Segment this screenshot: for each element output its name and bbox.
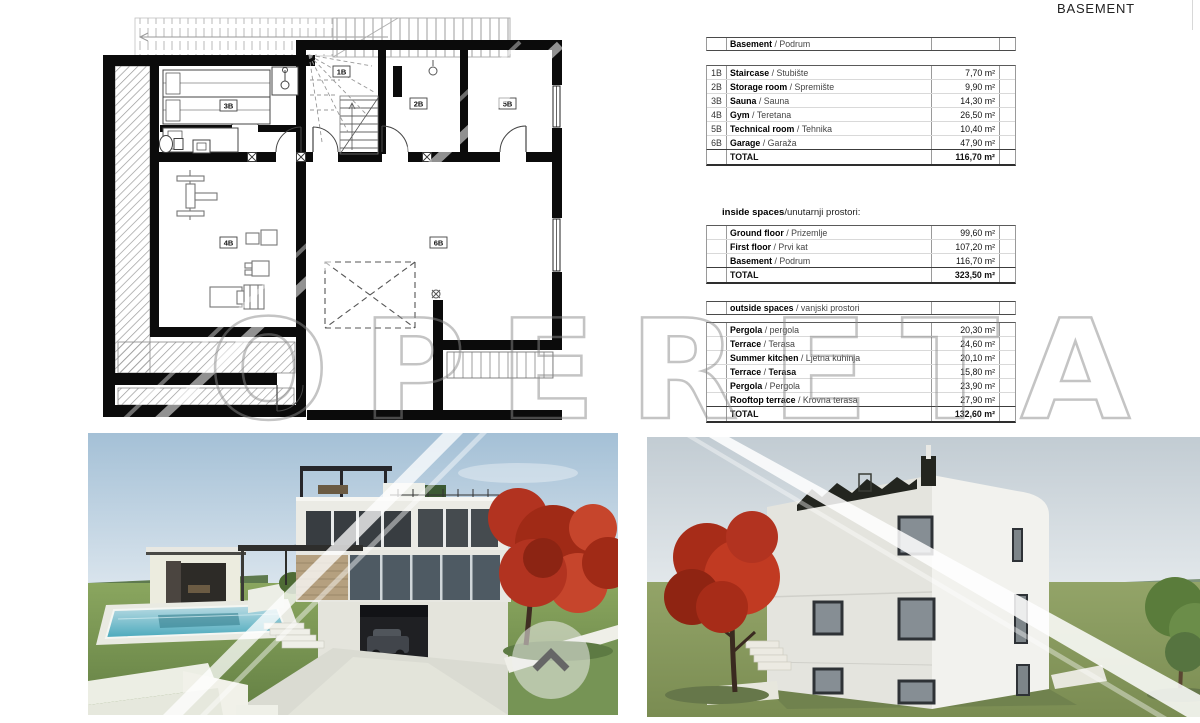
table-row: Summer kitchen / Ljetna kuhinja 20,10 m² (707, 351, 1015, 365)
floor-plan: 1B 2B 5B 3B 4B 6B (85, 0, 585, 430)
chevron-up-icon (529, 645, 573, 675)
table-row: Terrace / Terasa 24,60 m² (707, 337, 1015, 351)
floor-drains (247, 290, 440, 300)
inside-spaces-table: Ground floor / Prizemlje 99,60 m² First … (706, 225, 1016, 284)
page: BASEMENT (0, 0, 1200, 723)
ceiling-lamp-icon (429, 60, 437, 75)
table-row: 4B Gym / Teretana 26,50 m² (707, 108, 1015, 122)
table-row: Pergola / Pergola 23,90 m² (707, 379, 1015, 393)
table-total-row: TOTAL 132,60 m² (706, 406, 1016, 423)
scroll-to-top-button[interactable] (512, 621, 590, 699)
page-title: BASEMENT (1057, 1, 1135, 16)
window (418, 509, 498, 547)
table-row: 2B Storage room / Spremište 9,90 m² (707, 80, 1015, 94)
room-label-2b: 2B (414, 100, 424, 109)
room-label-4b: 4B (224, 239, 234, 248)
table-total-row: TOTAL 116,70 m² (706, 149, 1016, 166)
table-row: 5B Technical room / Tehnika 10,40 m² (707, 122, 1015, 136)
basement-area-table: Basement / Podrum 1B Staircase / Stubišt… (706, 37, 1016, 166)
exterior-staircase-top (333, 18, 510, 57)
exterior-staircase-bottom (447, 352, 553, 378)
window-edge-line (1192, 0, 1193, 30)
room-label-1b: 1B (337, 68, 347, 77)
house-rendering-rear (647, 437, 1200, 717)
garage-lift-dashed (325, 262, 415, 328)
table-row: 3B Sauna / Sauna 14,30 m² (707, 94, 1015, 108)
room-label-3b: 3B (224, 102, 234, 111)
outside-spaces-table: outside spaces / vanjski prostori Pergol… (706, 301, 1016, 423)
table-row: Pergola / pergola 20,30 m² (707, 323, 1015, 337)
table-row: Basement / Podrum 116,70 m² (707, 254, 1015, 267)
table-total-row: TOTAL 323,50 m² (706, 267, 1016, 284)
glass-wall (350, 555, 500, 600)
table-row: First floor / Prvi kat 107,20 m² (707, 240, 1015, 254)
inside-spaces-title: inside spaces/unutarnji prostori: (722, 207, 860, 218)
table-header: Basement / Podrum (706, 37, 1016, 51)
table-header: outside spaces / vanjski prostori (706, 301, 1016, 315)
table-row: 1B Staircase / Stubište 7,70 m² (707, 66, 1015, 80)
table-row: Rooftop terrace / Krovna terasa 27,90 m² (707, 393, 1015, 406)
pool-house (146, 547, 246, 605)
room-label-6b: 6B (434, 239, 444, 248)
table-row: 6B Garage / Garaža 47,90 m² (707, 136, 1015, 149)
table-row: Terrace / Terasa 15,80 m² (707, 365, 1015, 379)
table-row: Ground floor / Prizemlje 99,60 m² (707, 226, 1015, 240)
